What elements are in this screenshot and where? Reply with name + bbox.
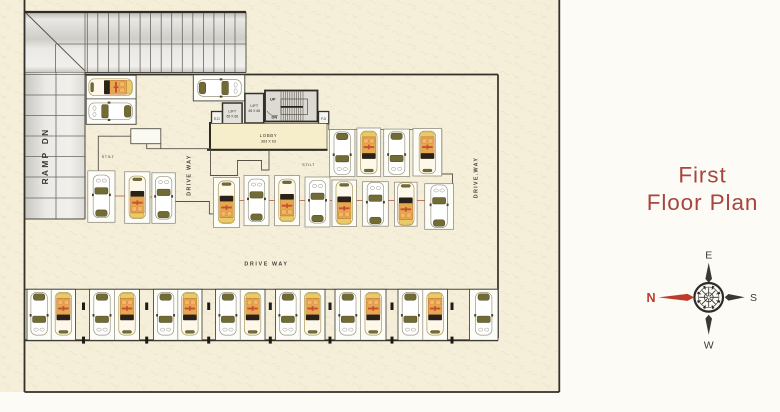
svg-text:STILT: STILT bbox=[102, 154, 115, 159]
svg-text:RAMP DN: RAMP DN bbox=[40, 128, 50, 185]
svg-text:383 X 63: 383 X 63 bbox=[261, 140, 276, 144]
svg-text:65 X 66: 65 X 66 bbox=[248, 109, 260, 113]
svg-text:STILT: STILT bbox=[302, 162, 315, 167]
svg-text:65 X 66: 65 X 66 bbox=[226, 115, 238, 119]
svg-text:E: E bbox=[705, 250, 712, 262]
svg-text:DRIVE.WAY: DRIVE.WAY bbox=[474, 157, 480, 198]
svg-text:LIFT: LIFT bbox=[250, 104, 258, 108]
svg-text:W: W bbox=[704, 340, 714, 352]
svg-text:DRIVE WAY: DRIVE WAY bbox=[244, 262, 288, 268]
svg-text:S: S bbox=[750, 292, 757, 304]
svg-text:LOBBY: LOBBY bbox=[260, 133, 278, 138]
svg-text:LIFT: LIFT bbox=[228, 110, 236, 114]
svg-text:First: First bbox=[678, 163, 726, 188]
svg-text:E.D: E.D bbox=[214, 117, 220, 121]
svg-text:N: N bbox=[646, 291, 655, 305]
svg-text:UP: UP bbox=[270, 97, 276, 102]
svg-text:DRIVE WAY: DRIVE WAY bbox=[187, 154, 193, 195]
svg-text:F.D: F.D bbox=[321, 117, 327, 121]
svg-text:Floor Plan: Floor Plan bbox=[647, 190, 759, 215]
